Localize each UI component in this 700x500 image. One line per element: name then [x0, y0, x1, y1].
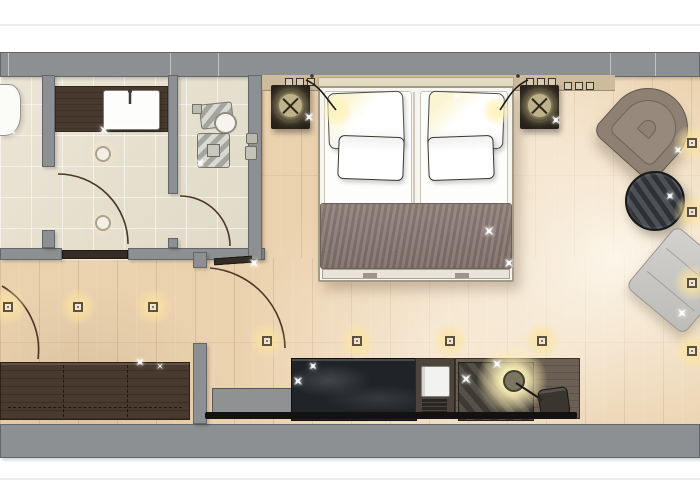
footboard [322, 269, 510, 279]
wall-seam [610, 53, 611, 76]
footboard-notch [455, 273, 469, 278]
footboard-notch [363, 273, 377, 278]
armchair-seat [637, 117, 660, 140]
table-lamp-icon [275, 90, 306, 121]
bed-center-divider [413, 92, 415, 204]
wall-bedroom-door-stub-top [193, 252, 207, 268]
desk-lamp-icon [503, 370, 525, 392]
bath-door-threshold [62, 250, 128, 259]
pillow-left-small [337, 135, 404, 181]
cushion-seam [666, 248, 700, 289]
cushion-seam [647, 271, 695, 312]
wall-shower-divider-stub [168, 238, 178, 248]
shower-bowl [214, 112, 237, 134]
table-lamp-icon [524, 90, 555, 121]
vanity-sink [103, 90, 160, 130]
shower-control-upper [246, 133, 258, 144]
wall-top [0, 52, 700, 77]
wall-seam [170, 53, 171, 76]
page-divider-top [0, 24, 700, 26]
drain-center [207, 144, 220, 157]
floor-plan [0, 0, 700, 500]
nightstand-right [520, 85, 559, 129]
wardrobe-sliding-track [8, 407, 182, 408]
light-switch [575, 82, 583, 90]
wall-seam [8, 53, 9, 76]
wall-bottom [0, 424, 700, 458]
wardrobe-door-divider [63, 365, 64, 417]
shower-drain [197, 133, 230, 168]
light-switch [564, 82, 572, 90]
page-divider-bottom [0, 478, 700, 480]
armchair-arms [608, 88, 687, 167]
light-switch [586, 82, 594, 90]
minibar-fridge [421, 366, 450, 397]
wall-seam [655, 53, 656, 76]
flush-button [192, 104, 202, 114]
pillow-right-small [427, 135, 494, 181]
bed-runner [320, 203, 512, 269]
wall-bath-south-left [0, 248, 62, 260]
wardrobe [0, 362, 190, 420]
light-switch-group-far-right [564, 77, 597, 95]
shower-control-lower [245, 146, 257, 160]
wall-shower-divider [168, 75, 178, 194]
minibar-housing [415, 358, 455, 419]
nightstand-left [271, 85, 310, 129]
wall-wc-divider [42, 75, 55, 167]
luggage-bench [212, 388, 296, 413]
round-side-table [625, 171, 685, 231]
wall-wc-divider-stub [42, 230, 55, 248]
wardrobe-door-divider [127, 365, 128, 417]
wall-seam [218, 53, 219, 76]
wall-bath-east [248, 75, 262, 260]
tv-panel [205, 412, 577, 419]
